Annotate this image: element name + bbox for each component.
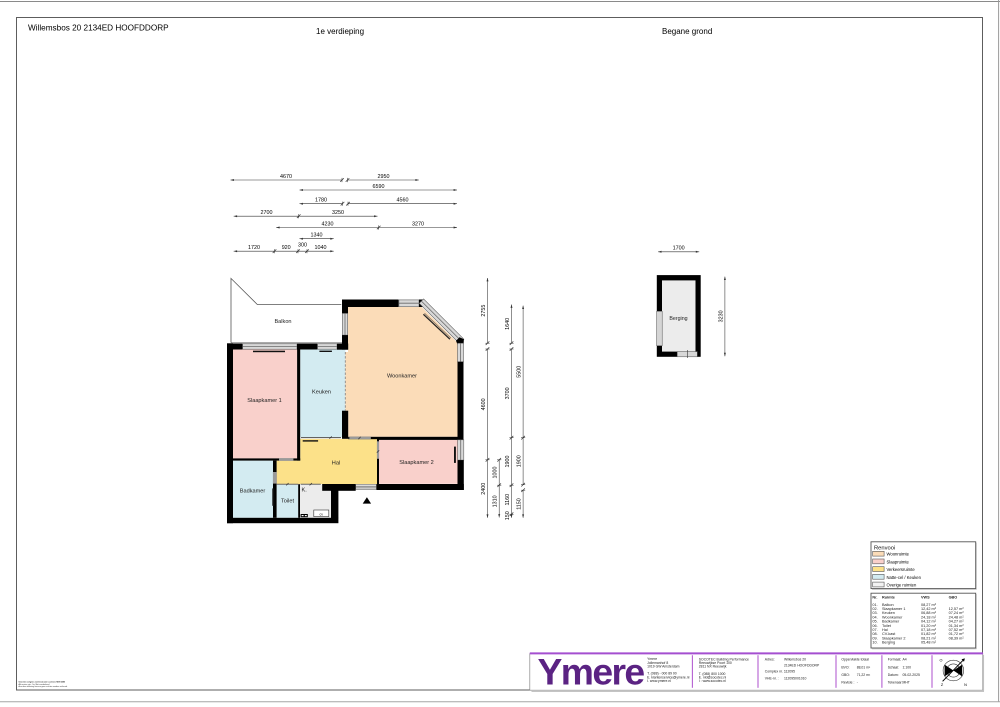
- svg-text:Slaapkamer 2: Slaapkamer 2: [399, 460, 434, 466]
- svg-text:Overige ruimten: Overige ruimten: [887, 583, 917, 588]
- svg-text:Tekenaar:: Tekenaar:: [888, 681, 903, 685]
- svg-text:Keuken: Keuken: [312, 390, 331, 396]
- svg-text:2950: 2950: [378, 174, 390, 180]
- svg-text:4230: 4230: [322, 221, 334, 227]
- svg-text:Adres:: Adres:: [765, 657, 775, 661]
- svg-text:2400: 2400: [481, 483, 487, 495]
- svg-text:Oppervlakte totaal: Oppervlakte totaal: [841, 658, 869, 662]
- svg-text:GBO:: GBO:: [841, 673, 850, 677]
- svg-text:2134ED HOOFDDORP: 2134ED HOOFDDORP: [784, 664, 820, 668]
- svg-text:10.: 10.: [872, 641, 877, 645]
- svg-text:1310: 1310: [493, 495, 499, 507]
- svg-text:I. www.ymere.nl: I. www.ymere.nl: [647, 679, 671, 683]
- svg-text:Verkeersruimte: Verkeersruimte: [887, 567, 916, 572]
- svg-text:1900: 1900: [505, 456, 511, 468]
- svg-text:MHT: MHT: [903, 681, 910, 685]
- svg-text:4560: 4560: [397, 198, 409, 204]
- svg-text:3250: 3250: [332, 210, 344, 216]
- svg-text:1640: 1640: [505, 318, 511, 330]
- svg-text:05,48 m²: 05,48 m²: [921, 641, 937, 645]
- svg-text:2755: 2755: [481, 305, 487, 317]
- svg-text:GBO: GBO: [949, 596, 958, 600]
- svg-text:K.: K.: [302, 488, 308, 494]
- svg-text:Nr.: Nr.: [872, 596, 877, 600]
- svg-text:1780: 1780: [315, 198, 327, 204]
- svg-text:VHE-nr. :: VHE-nr. :: [765, 677, 779, 681]
- svg-text:Slaapkamer 1: Slaapkamer 1: [247, 398, 282, 404]
- svg-text:Badkamer: Badkamer: [240, 489, 266, 495]
- svg-text:Datum:: Datum:: [888, 673, 899, 677]
- svg-text:1:100: 1:100: [903, 665, 912, 669]
- svg-text:08,39 m²: 08,39 m²: [949, 636, 965, 640]
- svg-text:5500: 5500: [517, 366, 523, 378]
- svg-text:1000: 1000: [493, 467, 499, 479]
- svg-text:71,22 m²: 71,22 m²: [857, 673, 871, 677]
- svg-text:112095: 112095: [784, 670, 795, 674]
- svg-text:1040: 1040: [315, 245, 327, 251]
- svg-text:A4: A4: [903, 658, 907, 662]
- svg-text:2811 NX Reeuwijk: 2811 NX Reeuwijk: [699, 665, 727, 669]
- svg-text:Aan deze tekening kunnen geen: Aan deze tekening kunnen geen rechten wo…: [19, 685, 68, 688]
- svg-text:Woonkamer: Woonkamer: [387, 374, 417, 380]
- svg-text:Hal: Hal: [332, 461, 340, 467]
- svg-text:cv: cv: [320, 512, 324, 516]
- svg-text:Balkon: Balkon: [274, 319, 291, 325]
- svg-text:1900: 1900: [517, 455, 523, 467]
- svg-text:Begane grond: Begane grond: [662, 27, 712, 36]
- svg-text:Toilet: Toilet: [281, 499, 295, 505]
- svg-text:Complex nr. :: Complex nr. :: [765, 670, 785, 674]
- svg-text:1700: 1700: [673, 245, 685, 251]
- svg-text:VWS: VWS: [921, 596, 930, 600]
- svg-text:Willemsbos 20 2134ED HOOFDDORP: Willemsbos 20 2134ED HOOFDDORP: [28, 24, 169, 33]
- svg-text:1160: 1160: [505, 494, 511, 506]
- svg-text:88,01 m²: 88,01 m²: [857, 665, 871, 669]
- svg-text:300: 300: [298, 242, 307, 248]
- svg-text:2700: 2700: [261, 210, 273, 216]
- svg-text:Schaal:: Schaal:: [888, 665, 899, 669]
- svg-text:Ruimte: Ruimte: [882, 596, 895, 600]
- svg-text:BVO:: BVO:: [841, 665, 849, 669]
- svg-text:Slaapruimte: Slaapruimte: [887, 559, 910, 564]
- svg-text:3230: 3230: [718, 310, 724, 322]
- svg-text:Willemsbos 20: Willemsbos 20: [784, 657, 806, 661]
- svg-text:112095001010: 112095001010: [784, 677, 806, 681]
- svg-text:1340: 1340: [311, 233, 323, 239]
- svg-text:I : www.socotec.nl: I : www.socotec.nl: [699, 679, 726, 683]
- svg-text:6590: 6590: [373, 184, 385, 190]
- svg-text:Formaat:: Formaat:: [888, 658, 902, 662]
- svg-text:Renvooi: Renvooi: [874, 546, 895, 552]
- svg-text:920: 920: [282, 245, 291, 251]
- svg-text:Revisie :: Revisie :: [841, 681, 854, 685]
- svg-text:4670: 4670: [280, 174, 292, 180]
- svg-text:1e verdieping: 1e verdieping: [316, 27, 364, 36]
- svg-text:150: 150: [505, 511, 511, 520]
- svg-text:Ymere: Ymere: [538, 651, 645, 693]
- svg-text:Berging: Berging: [882, 641, 895, 645]
- svg-text:O: O: [940, 659, 943, 663]
- svg-text:Natte-cel / Keuken: Natte-cel / Keuken: [887, 575, 922, 580]
- svg-text:1720: 1720: [248, 245, 260, 251]
- svg-text:4600: 4600: [481, 398, 487, 410]
- svg-text:-: -: [857, 681, 858, 685]
- svg-text:3270: 3270: [412, 221, 424, 227]
- svg-text:3700: 3700: [505, 387, 511, 399]
- svg-text:Berging: Berging: [669, 316, 687, 322]
- svg-text:N: N: [964, 683, 967, 687]
- svg-text:1019 GW Amsterdam: 1019 GW Amsterdam: [647, 665, 680, 669]
- svg-text:Woonruimte: Woonruimte: [887, 552, 910, 557]
- svg-text:1150: 1150: [517, 498, 523, 510]
- svg-text:05-02-2025: 05-02-2025: [903, 673, 920, 677]
